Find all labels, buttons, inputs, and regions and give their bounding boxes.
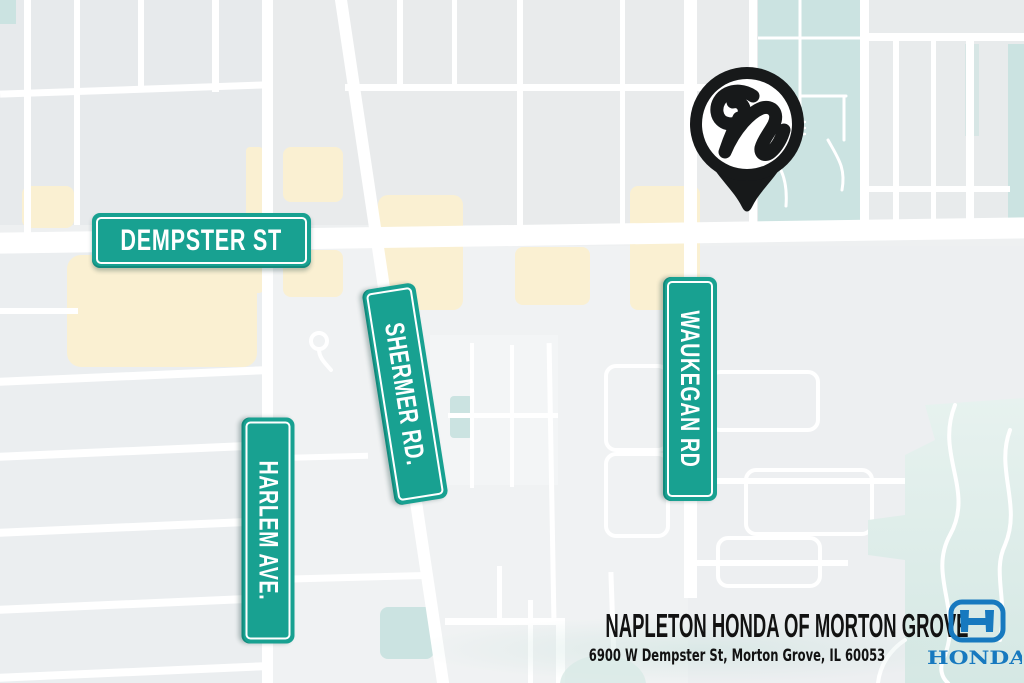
street-segment [448,413,558,418]
street-segment [860,0,869,227]
location-pin [687,64,807,214]
park-area [0,0,16,24]
street-segment [74,0,80,225]
dealership-info: NAPLETON HONDA OF MORTON GROVE 6900 W De… [502,609,972,665]
street-segment [931,36,936,226]
street-sign-waukegan: WAUKEGAN RD [663,277,717,501]
honda-logo: HONDA [922,598,1022,670]
commercial-zone [67,255,257,367]
park-area [1008,44,1024,218]
street-sign-harlem: HARLEM AVE. [242,418,295,644]
street-segment [862,186,1010,192]
street-segment [452,0,457,90]
street-sign-label: DEMPSTER ST [121,224,283,258]
street-segment [510,345,514,487]
honda-wordmark: HONDA [927,647,1022,669]
commercial-zone [283,147,343,202]
dealership-address: 6900 W Dempster St, Morton Grove, IL 600… [573,646,902,665]
street-segment [517,0,523,226]
street-segment [212,0,219,92]
street-segment [893,36,899,226]
street-segment [966,36,974,226]
street-sign-label: HARLEM AVE. [253,461,284,601]
map-canvas: DEMPSTER ST SHERMER RD. HARLEM AVE. WAUK… [0,0,1024,683]
street-segment [397,0,403,90]
street-segment [862,33,1024,41]
street-sign-dempster: DEMPSTER ST [92,213,311,268]
street-segment [138,0,144,90]
dealership-name: NAPLETON HONDA OF MORTON GROVE [605,609,868,644]
honda-h-icon [951,602,1003,640]
street-segment [620,0,625,226]
street-sign-label: WAUKEGAN RD [675,311,706,468]
commercial-zone [515,247,590,305]
cul-de-sac-loop [308,330,338,376]
street-segment [0,308,78,314]
street-segment [24,0,31,233]
street-segment [470,343,474,488]
street-sign-label: SHERMER RD. [378,320,431,467]
